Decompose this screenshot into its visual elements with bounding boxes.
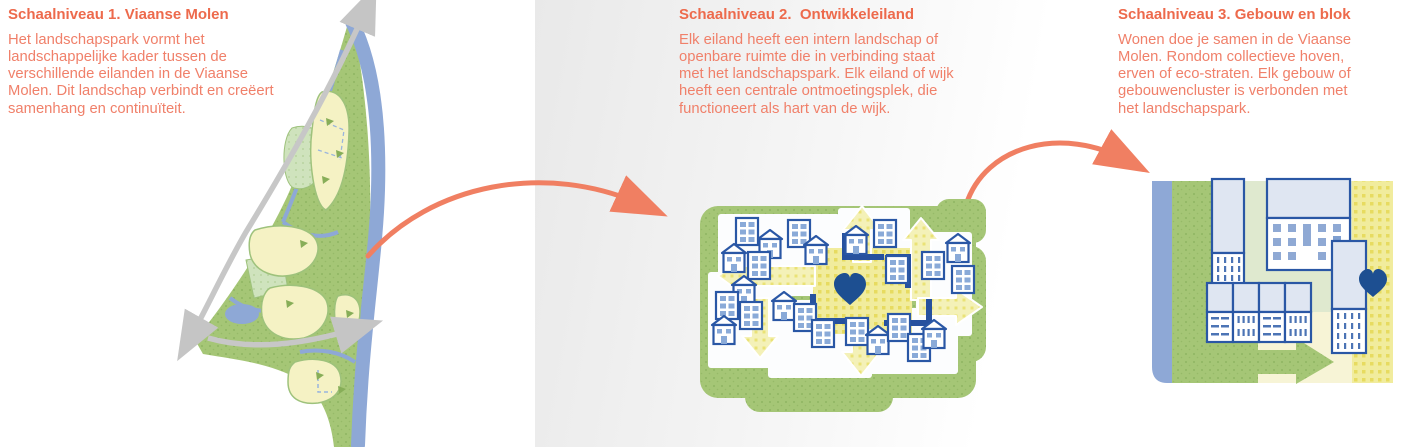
apartment-icon — [874, 220, 896, 247]
building-and-block — [1152, 179, 1393, 384]
panel-1-title: Schaalniveau 1. Viaanse Molen — [8, 6, 280, 23]
island — [261, 285, 327, 339]
curved-arrow-icon — [966, 143, 1128, 205]
block-buildings — [1207, 179, 1366, 353]
panel-3-text: Schaalniveau 3. Gebouw en blok Wonen doe… — [1118, 6, 1358, 118]
apartment-icon — [846, 318, 868, 345]
development-island — [700, 199, 986, 412]
apartment-icon — [716, 292, 738, 319]
apartment-icon — [888, 314, 910, 341]
apartment-icon — [740, 302, 762, 329]
panel-1-body: Het landschapspark vormt het landschappe… — [8, 32, 280, 118]
apartment-icon — [922, 252, 944, 279]
panel-3-title: Schaalniveau 3. Gebouw en blok — [1118, 6, 1358, 23]
infographic-canvas: Schaalniveau 1. Viaanse Molen Het landsc… — [0, 0, 1412, 447]
apartment-icon — [886, 256, 908, 283]
panel-2-body: Elk eiland heeft een intern landschap of… — [679, 32, 959, 118]
panel-2-text: Schaalniveau 2. Ontwikkeleiland Elk eila… — [679, 6, 959, 118]
pond — [225, 304, 259, 324]
curved-arrow-icon — [368, 183, 645, 256]
panel-3-body: Wonen doe je samen in de Viaanse Molen. … — [1118, 32, 1358, 118]
island — [288, 359, 341, 403]
panel-2-title: Schaalniveau 2. Ontwikkeleiland — [679, 6, 959, 23]
apartment-icon — [952, 266, 974, 293]
panel-1-text: Schaalniveau 1. Viaanse Molen Het landsc… — [8, 6, 280, 118]
apartment-icon — [736, 218, 758, 245]
apartment-icon — [812, 320, 834, 347]
island — [249, 226, 318, 276]
water-strip — [1152, 181, 1172, 383]
apartment-icon — [748, 252, 770, 279]
